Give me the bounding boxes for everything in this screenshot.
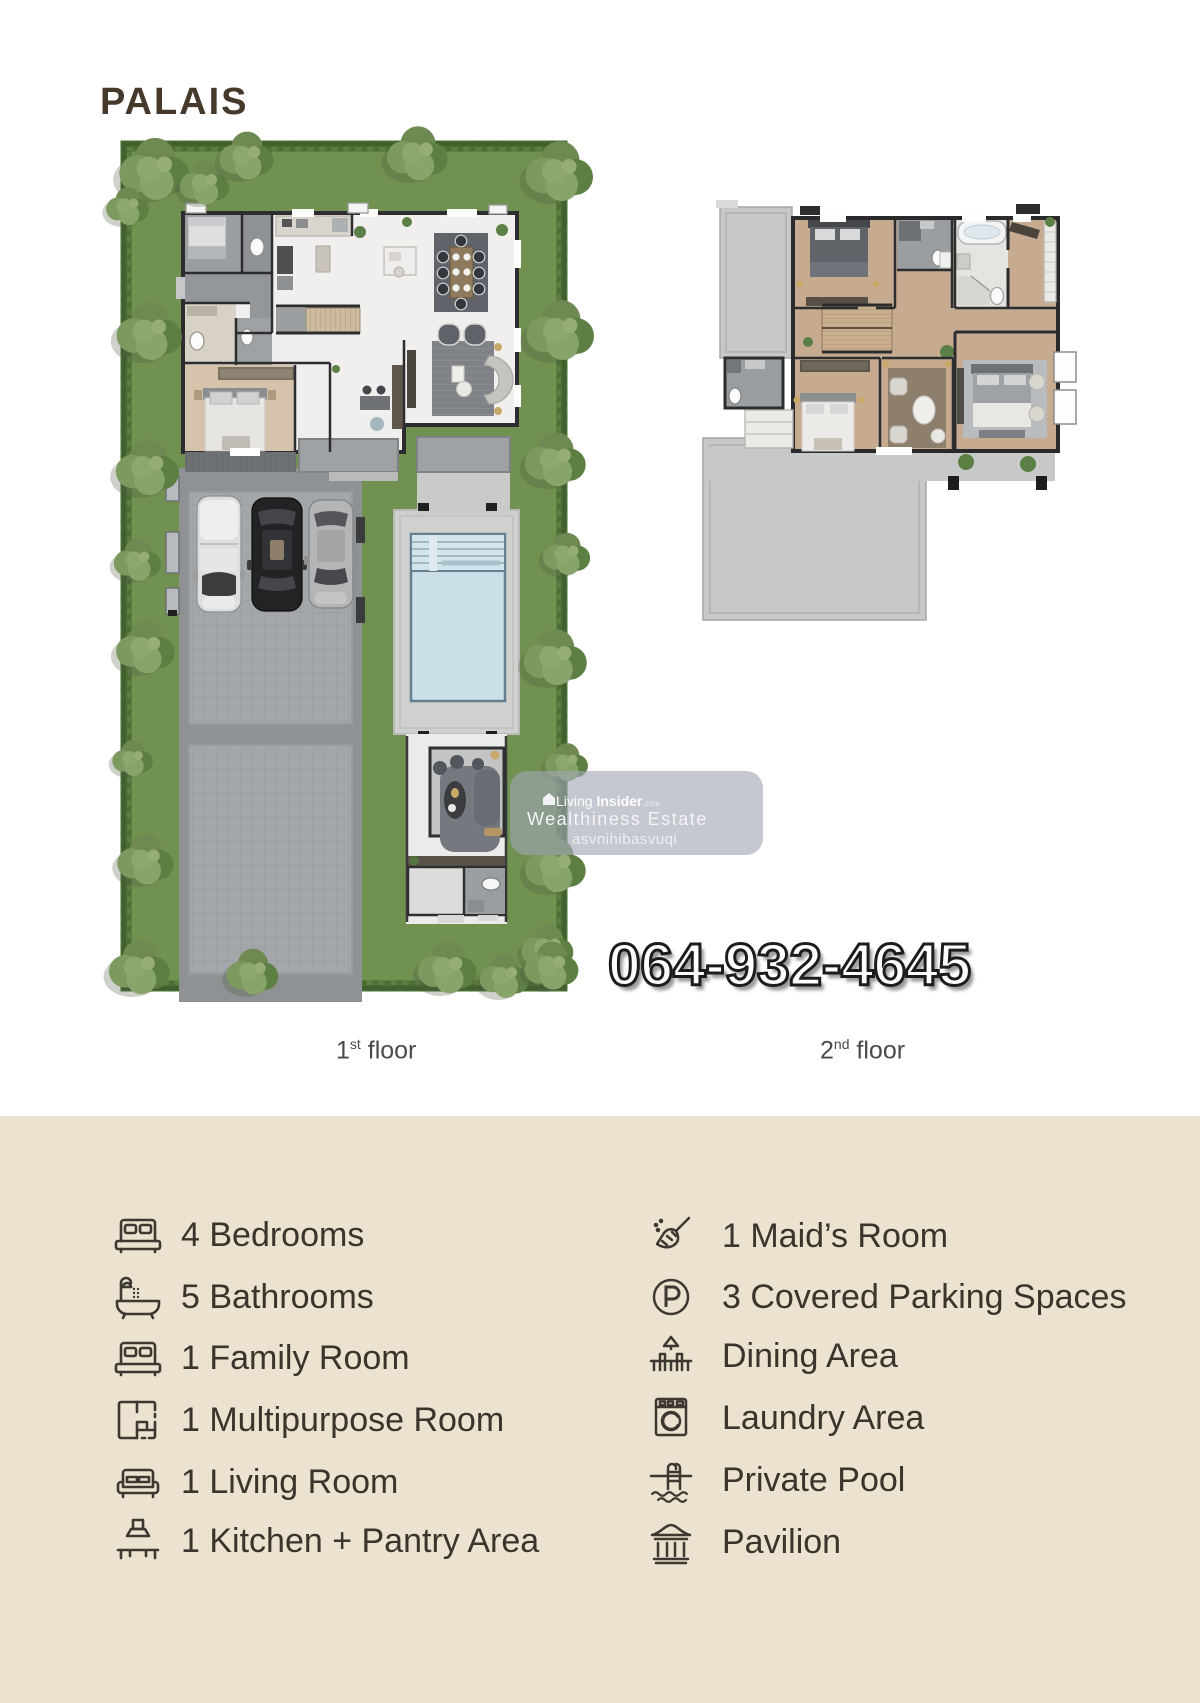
svg-text:Wealthiness Estate: Wealthiness Estate	[527, 809, 708, 829]
svg-text:asvnihibasvuqi: asvnihibasvuqi	[572, 831, 677, 848]
